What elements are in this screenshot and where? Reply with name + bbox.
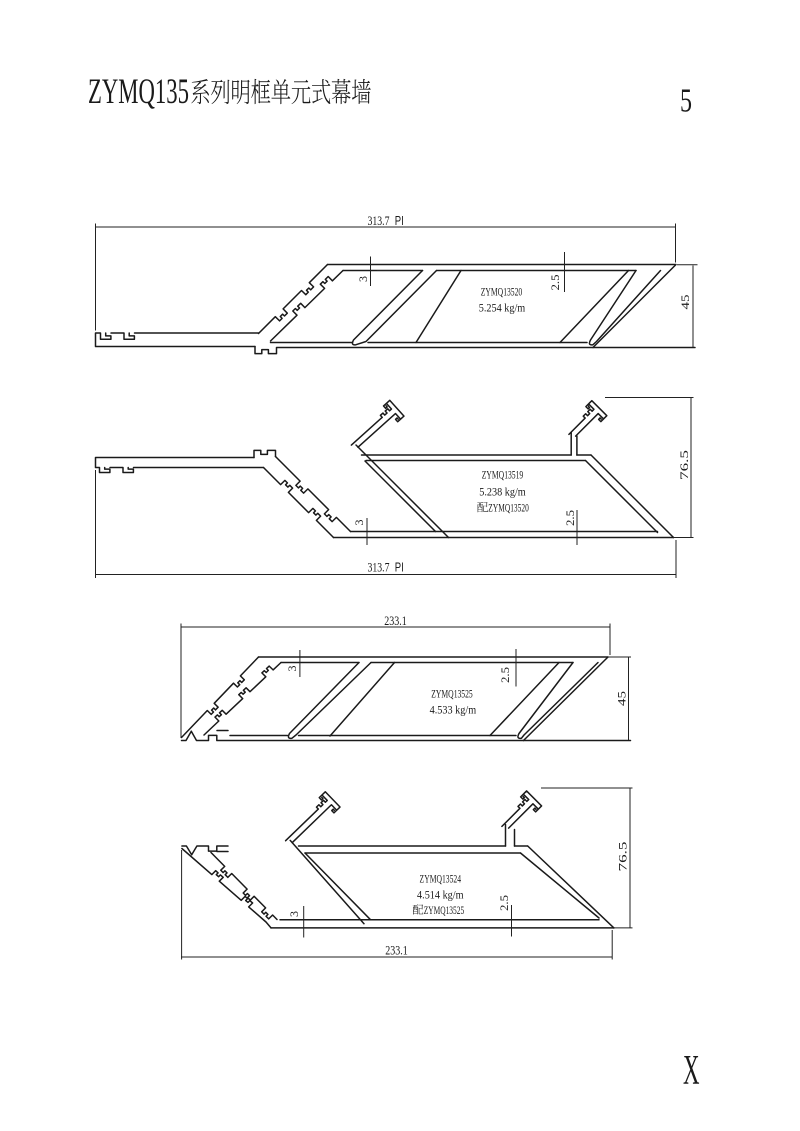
svg-text:313.7: 313.7 [368, 560, 390, 575]
svg-text:76.5: 76.5 [616, 842, 630, 872]
svg-text:ZYMQ13520: ZYMQ13520 [488, 503, 529, 515]
svg-text:3: 3 [352, 520, 366, 526]
svg-text:2.5: 2.5 [498, 667, 512, 683]
svg-text:5.254 kg/m: 5.254 kg/m [479, 302, 526, 314]
svg-text:313.7: 313.7 [368, 213, 390, 228]
svg-text:PI: PI [395, 214, 404, 228]
svg-text:ZYMQ13519: ZYMQ13519 [482, 470, 524, 482]
svg-text:5: 5 [680, 83, 692, 120]
svg-text:ZYMQ13525: ZYMQ13525 [424, 905, 465, 917]
svg-text:3: 3 [285, 666, 299, 672]
svg-text:ZYMQ13525: ZYMQ13525 [431, 689, 473, 701]
svg-text:233.1: 233.1 [385, 943, 408, 958]
svg-text:233.1: 233.1 [384, 613, 407, 628]
svg-text:ZYMQ135: ZYMQ135 [88, 71, 189, 111]
svg-text:X: X [683, 1048, 700, 1094]
svg-text:5.238 kg/m: 5.238 kg/m [479, 487, 526, 499]
svg-text:76.5: 76.5 [677, 450, 691, 480]
svg-text:2.5: 2.5 [497, 895, 511, 911]
svg-text:ZYMQ13520: ZYMQ13520 [481, 287, 523, 299]
svg-text:4.514 kg/m: 4.514 kg/m [417, 889, 464, 901]
svg-text:2.5: 2.5 [563, 510, 577, 526]
svg-text:PI: PI [395, 561, 404, 575]
svg-text:3: 3 [356, 276, 370, 282]
svg-text:2.5: 2.5 [548, 275, 562, 291]
svg-text:3: 3 [287, 911, 301, 917]
svg-text:4.533 kg/m: 4.533 kg/m [430, 705, 477, 717]
svg-text:ZYMQ13524: ZYMQ13524 [420, 874, 462, 886]
svg-text:45: 45 [678, 295, 692, 310]
svg-text:45: 45 [615, 691, 629, 706]
